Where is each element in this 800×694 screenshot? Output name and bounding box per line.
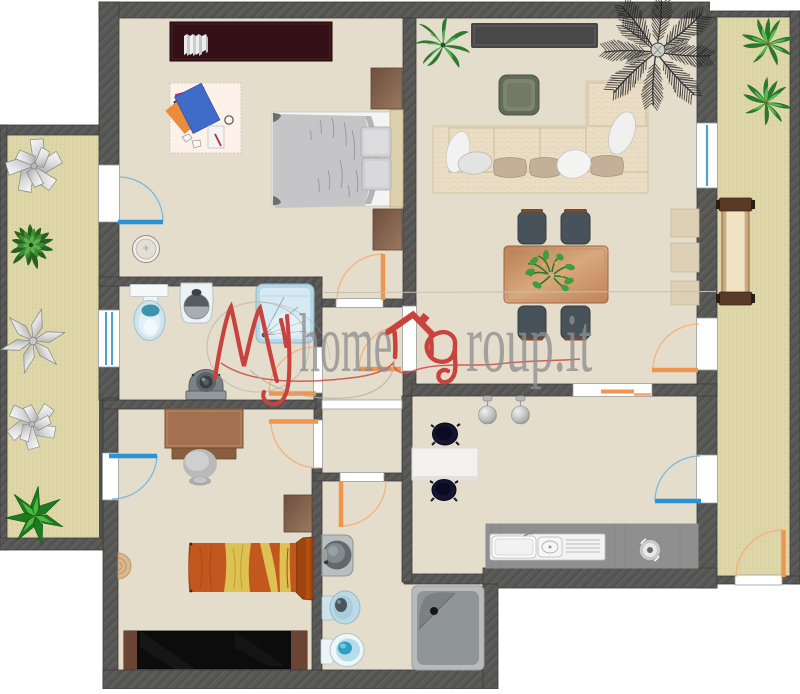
svg-text:home: home <box>299 298 392 390</box>
svg-text:roup.it: roup.it <box>466 296 592 389</box>
